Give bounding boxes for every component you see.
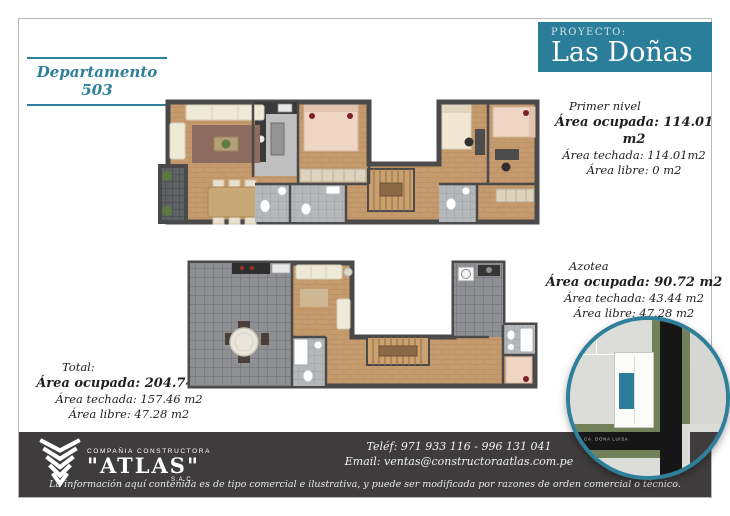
side-table <box>344 268 352 276</box>
dining-area <box>208 180 260 224</box>
sink-icon <box>326 186 340 194</box>
map-block <box>690 432 726 480</box>
area-title: Azotea <box>545 259 723 274</box>
bed-icon <box>493 107 535 137</box>
desk <box>475 129 485 155</box>
logo-text: COMPAÑIA CONSTRUCTORA "ATLAS" S.A.C. <box>87 448 211 483</box>
bathroom-3 <box>439 184 477 222</box>
rooftop-stairs <box>367 337 429 365</box>
plant-icon <box>222 140 231 149</box>
desk <box>495 149 519 160</box>
floor-plan-rooftop <box>186 259 538 389</box>
project-banner: PROYECTO: Las Doñas <box>538 22 712 72</box>
toilet-icon <box>446 198 456 210</box>
toilet-icon <box>303 370 313 382</box>
armchair-icon <box>337 299 350 329</box>
chair-icon <box>261 333 269 345</box>
sink-icon <box>278 187 287 196</box>
rug <box>300 289 328 307</box>
area-block-rooftop: Azotea Área ocupada: 90.72 m2 Área techa… <box>545 259 723 321</box>
phone-line: Teléf: 971 933 116 - 996 131 041 <box>319 439 599 454</box>
laundry-area <box>454 263 503 337</box>
stairs <box>368 169 414 211</box>
area-occupied: Área ocupada: 114.01 m2 <box>545 114 723 148</box>
location-map: JR. DOÑA CATALINA CA. DOÑA LUISA <box>566 316 730 480</box>
sink-icon <box>508 344 515 351</box>
email-value: ventas@constructoraatlas.com.pe <box>384 455 573 468</box>
area-block-first-level: Primer nivel Área ocupada: 114.01 m2 Áre… <box>545 99 723 178</box>
map-street-vertical <box>660 320 682 476</box>
sink-icon <box>486 267 492 273</box>
area-free: Área libre: 47.28 m2 <box>36 407 222 422</box>
street-name-vertical: JR. DOÑA CATALINA <box>692 361 696 426</box>
flyer-page: Departamento 503 PROYECTO: Las Doñas Pri… <box>0 0 730 516</box>
chair-icon <box>502 163 511 172</box>
closet <box>496 189 534 202</box>
bathtub-icon <box>520 328 533 352</box>
bathroom-1 <box>255 184 290 222</box>
toilet-icon <box>301 203 311 215</box>
street-name-horizontal: CA. DOÑA LUISA <box>584 438 639 442</box>
rooftop-bathroom-2 <box>503 325 535 355</box>
map-plot-line <box>634 356 635 424</box>
rooftop-bathroom <box>292 337 326 386</box>
plant-icon <box>162 206 172 216</box>
plant-icon <box>162 171 172 181</box>
bathroom-2 <box>290 184 346 222</box>
bedroom-1 <box>300 105 366 182</box>
hall-closet <box>496 189 534 202</box>
area-occupied: Área ocupada: 90.72 m2 <box>545 274 723 291</box>
round-table <box>230 328 258 356</box>
apartment-title: Departamento 503 <box>27 57 167 106</box>
phone-value: 971 933 116 - 996 131 041 <box>401 440 552 453</box>
toilet-icon <box>260 200 270 213</box>
email-label: Email: <box>345 455 381 468</box>
company-name: "ATLAS" <box>87 455 211 477</box>
map-green-strip <box>570 450 660 458</box>
stove-icon <box>278 104 292 112</box>
area-roofed: Área techada: 157.46 m2 <box>36 392 222 407</box>
toilet-icon <box>507 330 515 340</box>
contact-info: Teléf: 971 933 116 - 996 131 041 Email: … <box>319 439 599 469</box>
floor-plan-first-level <box>158 97 542 227</box>
chair-icon <box>465 138 474 147</box>
sink-icon <box>462 187 470 195</box>
map-block <box>570 458 660 478</box>
sofa-icon <box>170 123 185 159</box>
area-free: Área libre: 0 m2 <box>545 163 723 178</box>
rooftop-bedroom <box>506 357 532 383</box>
sofa-icon <box>296 265 342 279</box>
bbq-area <box>232 263 290 274</box>
map-green-strip <box>682 320 690 424</box>
phone-label: Teléf: <box>367 440 398 453</box>
area-roofed: Área techada: 114.01m2 <box>545 148 723 163</box>
balcony-terrace <box>160 166 186 222</box>
map-parcel-line <box>596 320 597 354</box>
email-line: Email: ventas@constructoraatlas.com.pe <box>319 454 599 469</box>
area-roofed: Área techada: 43.44 m2 <box>545 291 723 306</box>
map-project-building <box>619 373 634 409</box>
disclaimer-text: La información aquí contenida es de tipo… <box>19 479 711 490</box>
area-title: Primer nivel <box>545 99 723 114</box>
dining-table <box>208 187 260 217</box>
shower-icon <box>294 339 308 365</box>
project-name: Las Doñas <box>551 38 712 68</box>
sink-icon <box>314 341 322 349</box>
